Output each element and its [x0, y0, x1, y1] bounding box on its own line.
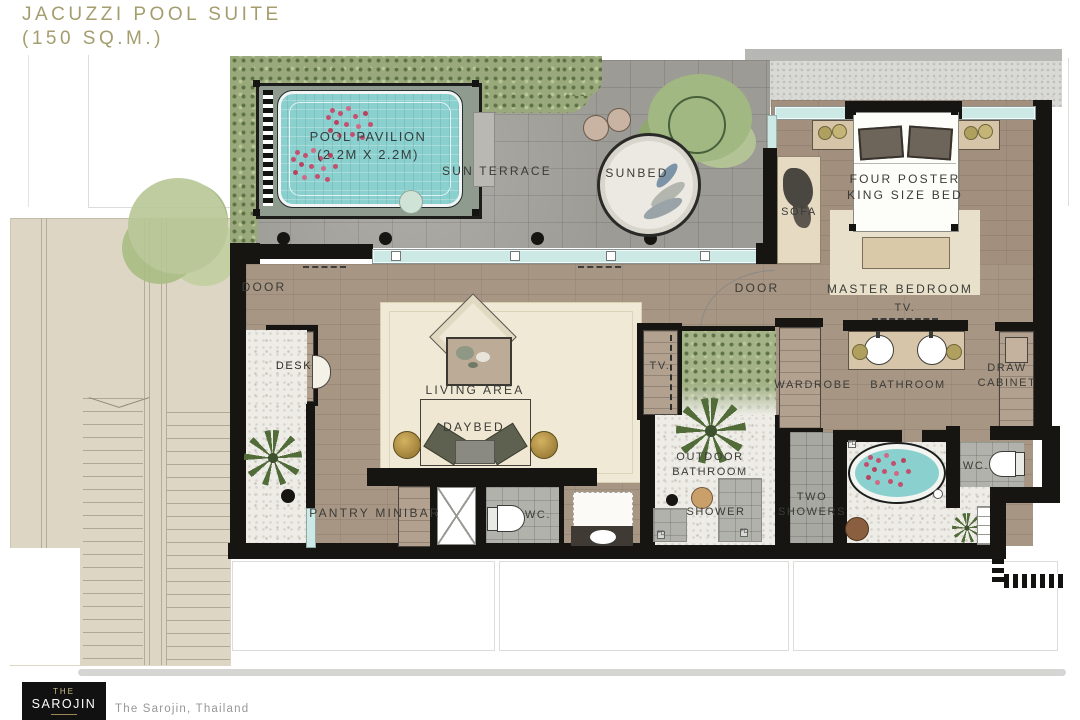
door-jamb: [391, 251, 401, 261]
label-outdoor-bathroom-2: BATHROOM: [672, 466, 748, 478]
bed-post: [849, 224, 856, 231]
label-desk: DESK: [276, 360, 312, 372]
label-sofa: SOFA: [781, 206, 817, 218]
label-fd: FD: [848, 441, 856, 447]
step-wall: [990, 503, 1006, 547]
label-pool-dimensions: (2.2M X 2.2M): [317, 147, 419, 162]
wc-right-bottom-wall: [990, 487, 1060, 503]
label-master-bedroom: MASTER BEDROOM: [827, 282, 973, 296]
wc-right-west-wall: [946, 426, 960, 508]
courtyard-palm: [244, 430, 302, 486]
sofa-side-wall: [763, 148, 777, 264]
bed-post: [951, 108, 958, 115]
terrace-downlight: [379, 232, 392, 245]
jacuzzi-tub: [848, 442, 946, 504]
label-wc-right: WC.: [963, 460, 989, 472]
label-bathroom: BATHROOM: [870, 379, 946, 391]
tub-handle: [933, 489, 943, 499]
stairs-left-flight: [83, 398, 143, 663]
bed-bench: [862, 237, 950, 269]
coffee-table: [446, 337, 512, 386]
two-showers-floor: [790, 432, 833, 543]
label-pantry-minibar: PANTRY MINIBAR: [309, 506, 441, 520]
toilet: [497, 505, 525, 532]
door-jamb: [700, 251, 710, 261]
basin: [589, 529, 617, 545]
sunbed: [597, 133, 701, 237]
label-wardrobe: WARDROBE: [774, 379, 851, 391]
daybed-cushion-center: [455, 440, 495, 464]
pool-petals: [295, 150, 300, 155]
bed-post: [951, 224, 958, 231]
door-arc-clip: [700, 270, 775, 330]
tub-petals: [868, 455, 873, 460]
west-wall: [230, 264, 246, 548]
label-tv-living: TV.: [650, 360, 671, 372]
label-door-left: DOOR: [242, 280, 287, 294]
label-two-showers-2: SHOWERS: [778, 506, 846, 518]
coffee-table-decor: [456, 346, 474, 360]
label-tv-bedroom: TV.: [895, 302, 916, 314]
plan-area: (150 SQ.M.): [22, 28, 164, 50]
pavilion-post: [253, 209, 260, 216]
logo-tagline: The Sarojin, Thailand: [115, 703, 249, 715]
bed-post: [849, 108, 856, 115]
pillow-left: [858, 126, 904, 161]
wc-right-top-wall: [990, 426, 1042, 440]
terrace-downlight: [531, 232, 544, 245]
side-table-gold-left: [393, 431, 421, 459]
wardrobe-cap-top: [775, 318, 823, 327]
fence-hatch-horizontal: [1004, 574, 1067, 588]
label-bed-line1: FOUR POSTER: [850, 172, 961, 186]
pouf: [607, 108, 631, 132]
wet-zone-stool: [845, 517, 869, 541]
label-daybed: DAYBED: [443, 420, 505, 434]
label-fd: FD: [740, 529, 748, 535]
duvet-fold: [854, 163, 956, 164]
pool-petals: [330, 108, 335, 113]
nightstand-decor: [818, 126, 832, 140]
adjacent-unit-outline-b: [499, 561, 789, 651]
logo-the: THE: [22, 687, 106, 696]
label-bed-line2: KING SIZE BED: [847, 188, 963, 202]
nightstand-decor: [978, 124, 993, 139]
pillow-right: [907, 126, 953, 161]
tv-screen: [670, 335, 672, 410]
wall-below-pool: [256, 244, 373, 259]
door-jamb: [510, 251, 520, 261]
label-two-showers-1: TWO: [797, 491, 827, 503]
walkway-notch: [0, 548, 80, 665]
label-sunbed: SUNBED: [605, 166, 668, 180]
tap: [929, 331, 933, 338]
logo-sarojin: SAROJIN: [22, 697, 106, 711]
plan-title: JACUZZI POOL SUITE: [22, 4, 282, 26]
draw-cabinet-box: [1005, 337, 1028, 363]
adjacent-outline-right: [1068, 58, 1069, 206]
nightstand-decor: [832, 124, 847, 139]
label-sun-terrace: SUN TERRACE: [442, 164, 552, 178]
adjacent-outline-line: [28, 55, 29, 207]
pavilion-post: [472, 209, 479, 216]
tv-cabinet: [643, 330, 678, 415]
adjacent-unit-outline-a: [232, 561, 495, 651]
label-draw-cabinet-2: CABINET: [978, 377, 1037, 389]
label-pool-pavilion: POOL PAVILION: [310, 129, 427, 144]
curtain: [303, 266, 346, 268]
nightstand-decor: [964, 126, 978, 140]
toilet-right: [989, 451, 1016, 477]
side-table-round: [399, 190, 423, 214]
courtyard-light: [281, 489, 295, 503]
pouf: [583, 115, 609, 141]
draw-cabinet-cap-top: [995, 322, 1034, 331]
vanity-sink-left: [864, 335, 894, 365]
floor-plan-jacuzzi-pool-suite: JACUZZI POOL SUITE (150 SQ.M.): [0, 0, 1080, 720]
door-jamb: [606, 251, 616, 261]
label-wc-left: WC.: [525, 509, 551, 521]
pavilion-deck-edge: [263, 90, 273, 206]
side-table-gold-right: [530, 431, 558, 459]
vanity-decor: [946, 344, 962, 360]
label-outdoor-bathroom-1: OUTDOOR: [676, 451, 743, 463]
vanity-wall: [843, 320, 968, 331]
tap: [876, 331, 880, 338]
curtain: [578, 266, 621, 268]
label-living-area: LIVING AREA: [426, 383, 525, 397]
floor-light: [666, 494, 678, 506]
walkway-tree: [128, 178, 228, 274]
entry-door: [437, 487, 476, 545]
label-door-right: DOOR: [735, 281, 780, 295]
label-draw-cabinet-1: DRAW: [987, 362, 1027, 374]
planted-border-top-end: [560, 56, 602, 96]
fence-hatch-vertical: [992, 559, 1004, 583]
walkway-edge-band: [78, 669, 1066, 676]
vanity-sink-right: [917, 335, 947, 365]
label-fd: FD: [657, 531, 665, 537]
pavilion-post: [472, 80, 479, 87]
sarojin-logo: THE SAROJIN: [22, 682, 106, 720]
stairs-right-flight: [167, 412, 230, 663]
logo-rule: [51, 714, 77, 715]
vanity-decor: [852, 344, 868, 360]
pavilion-post: [253, 80, 260, 87]
label-shower: SHOWER: [686, 506, 745, 518]
door-swing-arc: [700, 270, 775, 330]
walkway-joint-line: [144, 218, 150, 665]
